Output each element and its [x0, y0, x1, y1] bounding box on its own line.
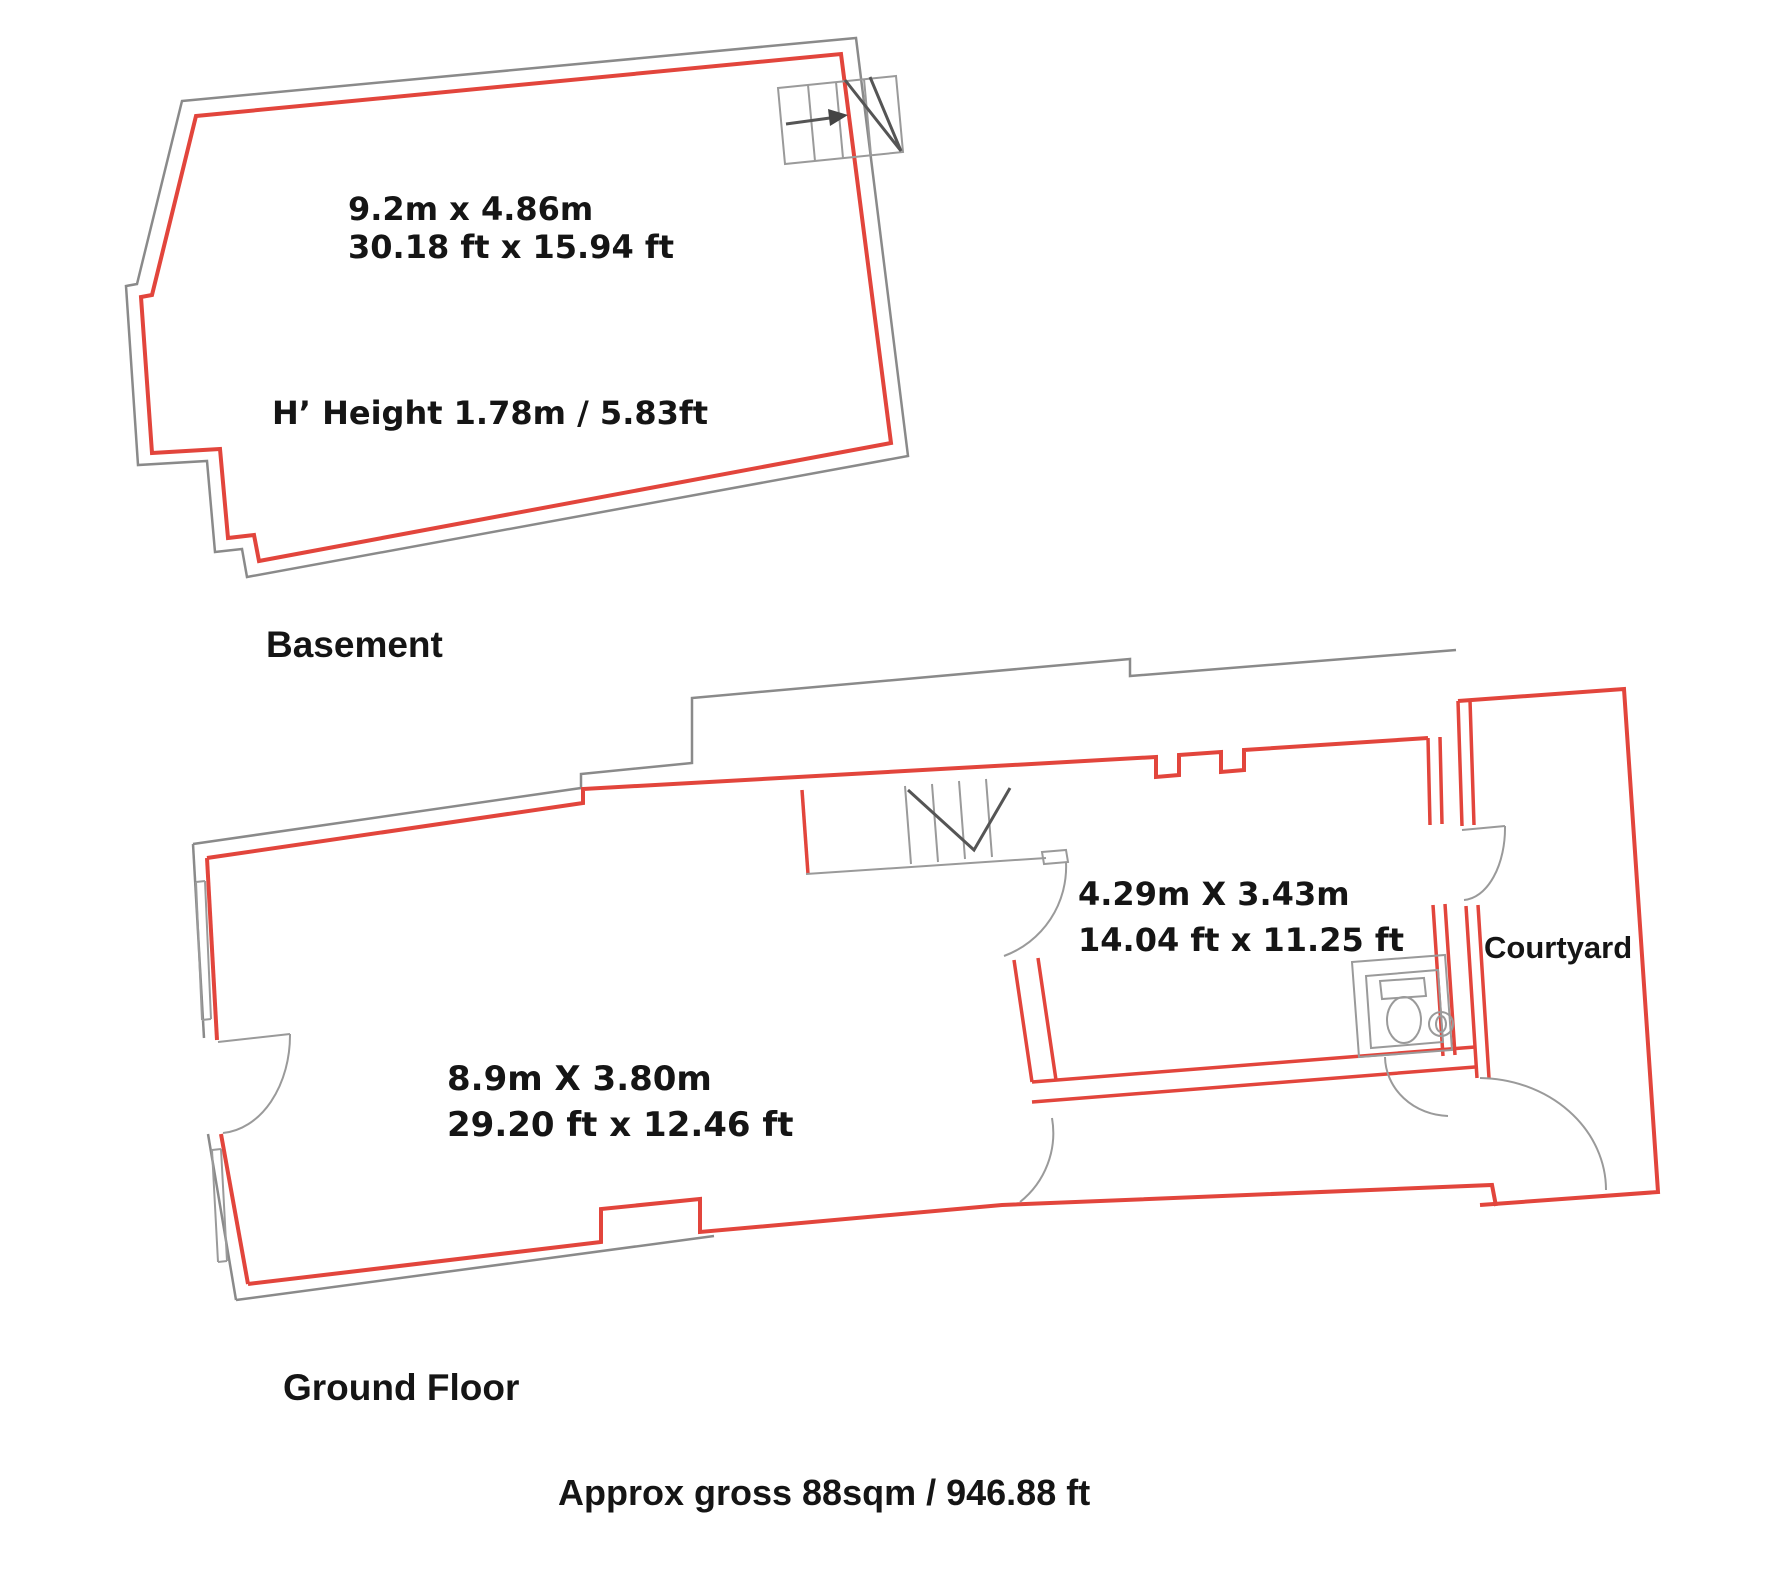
courtyard-label: Courtyard: [1484, 930, 1632, 965]
basement-dimensions-imperial: 30.18 ft x 15.94 ft: [348, 228, 674, 266]
door-arc-icon: [1464, 826, 1505, 900]
door-arc-icon: [1004, 862, 1066, 956]
corridor-top-wall: [1032, 1047, 1475, 1102]
floorplan-drawing: 9.2m x 4.86m 30.18 ft x 15.94 ft H’ Heig…: [0, 0, 1772, 1569]
basement-plan: 9.2m x 4.86m 30.18 ft x 15.94 ft H’ Heig…: [126, 38, 908, 665]
stair-side-wall: [802, 790, 808, 874]
ground-floor-red-bottom-edge: [248, 1185, 1496, 1284]
toilet-icon: [1380, 978, 1426, 1043]
ground-floor-outer-wall-bottom: [236, 1236, 714, 1300]
basement-dimensions-metric: 9.2m x 4.86m: [348, 190, 593, 228]
main-room-dimensions-imperial: 29.20 ft x 12.46 ft: [447, 1105, 793, 1145]
ground-floor-plan: 8.9m X 3.80m 29.20 ft x 12.46 ft 4.29m X…: [193, 650, 1658, 1408]
approx-gross-area-label: Approx gross 88sqm / 946.88 ft: [558, 1472, 1090, 1513]
door-arc-icon: [1385, 1057, 1448, 1116]
stairs-icon: [806, 779, 1068, 874]
entrance-door: [218, 1034, 290, 1133]
door-arc-icon: [223, 1034, 290, 1133]
wc-cubicle: [1352, 955, 1453, 1057]
courtyard-door: [1462, 826, 1505, 900]
basement-ceiling-height: H’ Height 1.78m / 5.83ft: [272, 394, 708, 432]
stairs-icon: [778, 76, 903, 164]
rear-room-dimensions-imperial: 14.04 ft x 11.25 ft: [1078, 921, 1404, 959]
basement-label: Basement: [266, 624, 443, 665]
door-arc-icon: [1020, 1118, 1053, 1202]
floorplan-page: 9.2m x 4.86m 30.18 ft x 15.94 ft H’ Heig…: [0, 0, 1772, 1569]
basement-outer-wall: [126, 38, 908, 577]
basement-red-outline: [141, 54, 891, 561]
main-room-dimensions-metric: 8.9m X 3.80m: [447, 1059, 712, 1099]
ground-floor-red-top-edge: [207, 738, 1428, 858]
room-divider-wall: [1014, 958, 1056, 1082]
rear-room-dimensions-metric: 4.29m X 3.43m: [1078, 875, 1350, 913]
ground-floor-label: Ground Floor: [283, 1367, 519, 1408]
door-arc-icon: [1480, 1078, 1606, 1190]
